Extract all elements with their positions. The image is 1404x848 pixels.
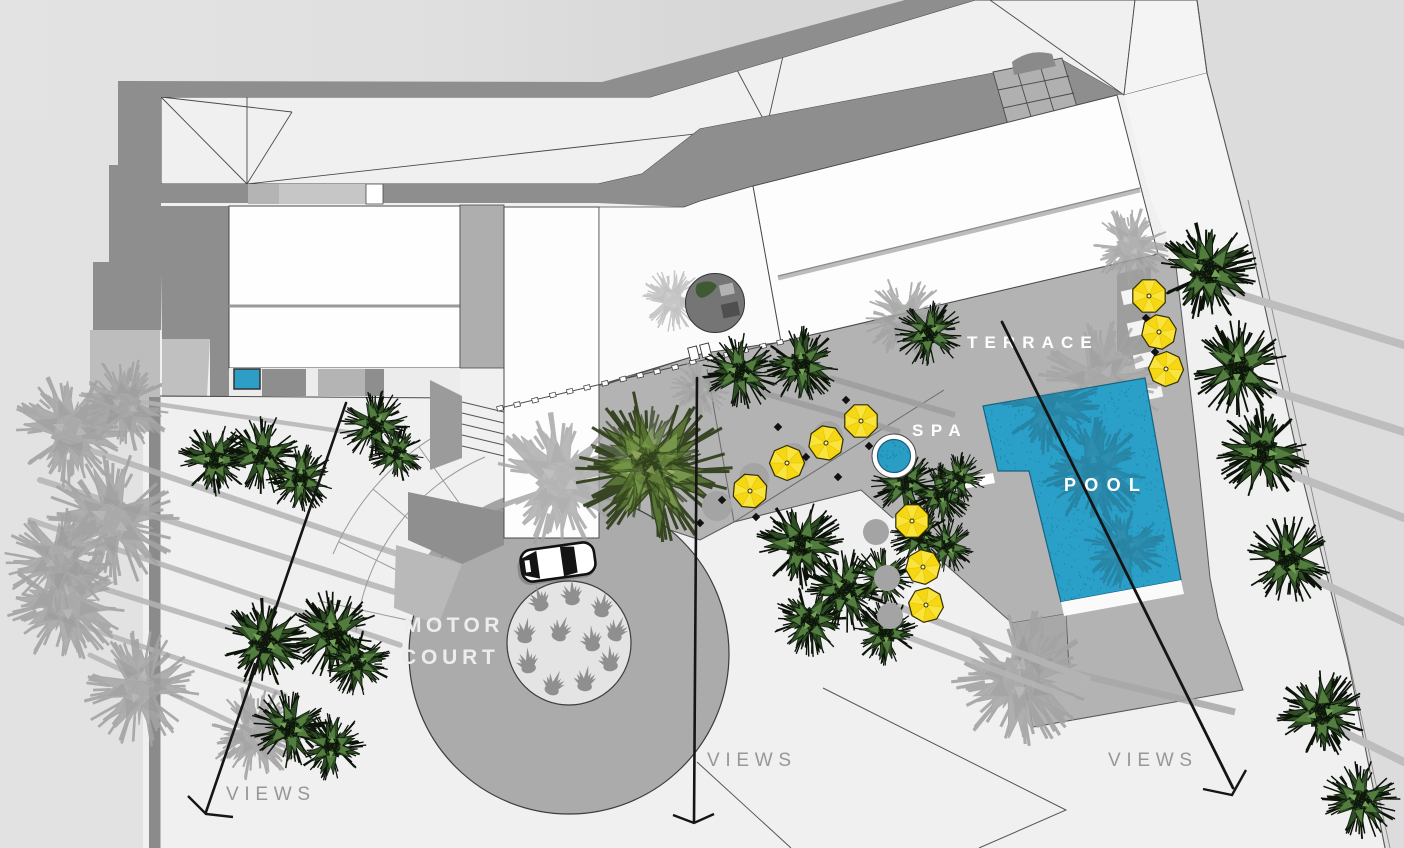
svg-text:SPA: SPA [912, 421, 968, 440]
svg-text:VIEWS: VIEWS [707, 750, 797, 771]
svg-text:MOTOR: MOTOR [404, 614, 504, 637]
svg-text:VIEWS: VIEWS [1108, 750, 1198, 771]
svg-text:POOL: POOL [1064, 475, 1148, 495]
svg-text:COURT: COURT [401, 646, 500, 669]
svg-text:VIEWS: VIEWS [226, 784, 316, 805]
svg-text:TERRACE: TERRACE [967, 333, 1099, 352]
